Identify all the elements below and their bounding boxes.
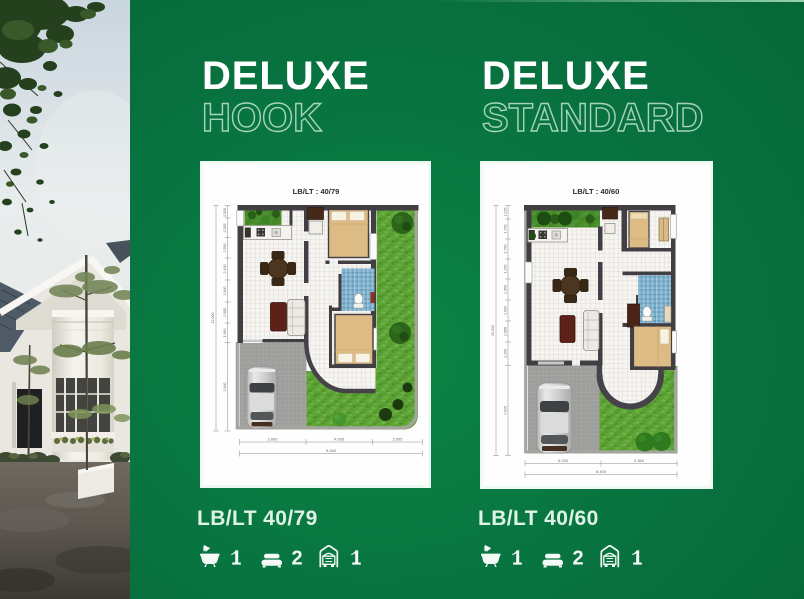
svg-text:1.900: 1.900 [222, 328, 226, 337]
svg-text:LB/LT : 40/79: LB/LT : 40/79 [292, 187, 339, 196]
svg-text:1.500: 1.500 [222, 208, 226, 217]
svg-text:2.085: 2.085 [222, 308, 226, 317]
svg-text:9.040: 9.040 [325, 448, 336, 453]
svg-text:2.085: 2.085 [503, 327, 507, 336]
svg-text:1.750: 1.750 [503, 244, 507, 253]
svg-text:3.000: 3.000 [222, 382, 226, 391]
svg-text:3.360: 3.360 [634, 458, 645, 463]
svg-text:12.000: 12.000 [211, 312, 215, 323]
svg-text:2.385: 2.385 [222, 223, 226, 232]
svg-text:4.095: 4.095 [333, 436, 344, 441]
svg-text:2: 2 [292, 548, 303, 570]
svg-text:LB/LT : 40/60: LB/LT : 40/60 [573, 187, 620, 196]
svg-text:8.400: 8.400 [596, 469, 607, 474]
svg-text:4.025: 4.025 [503, 406, 507, 415]
svg-text:2.005: 2.005 [392, 436, 403, 441]
svg-text:2.500: 2.500 [222, 243, 226, 252]
svg-text:1.950: 1.950 [503, 285, 507, 294]
svg-text:2.400: 2.400 [222, 264, 226, 273]
svg-text:5.030: 5.030 [558, 458, 569, 463]
svg-text:1.600: 1.600 [222, 286, 226, 295]
svg-text:1.600: 1.600 [503, 306, 507, 315]
svg-text:1.700: 1.700 [503, 224, 507, 233]
svg-text:1.150: 1.150 [503, 264, 507, 273]
svg-text:2: 2 [572, 548, 583, 570]
svg-text:1.025: 1.025 [503, 207, 507, 216]
svg-text:3.000: 3.000 [267, 436, 278, 441]
svg-text:1.200: 1.200 [503, 349, 507, 358]
svg-text:10.000: 10.000 [491, 325, 495, 336]
